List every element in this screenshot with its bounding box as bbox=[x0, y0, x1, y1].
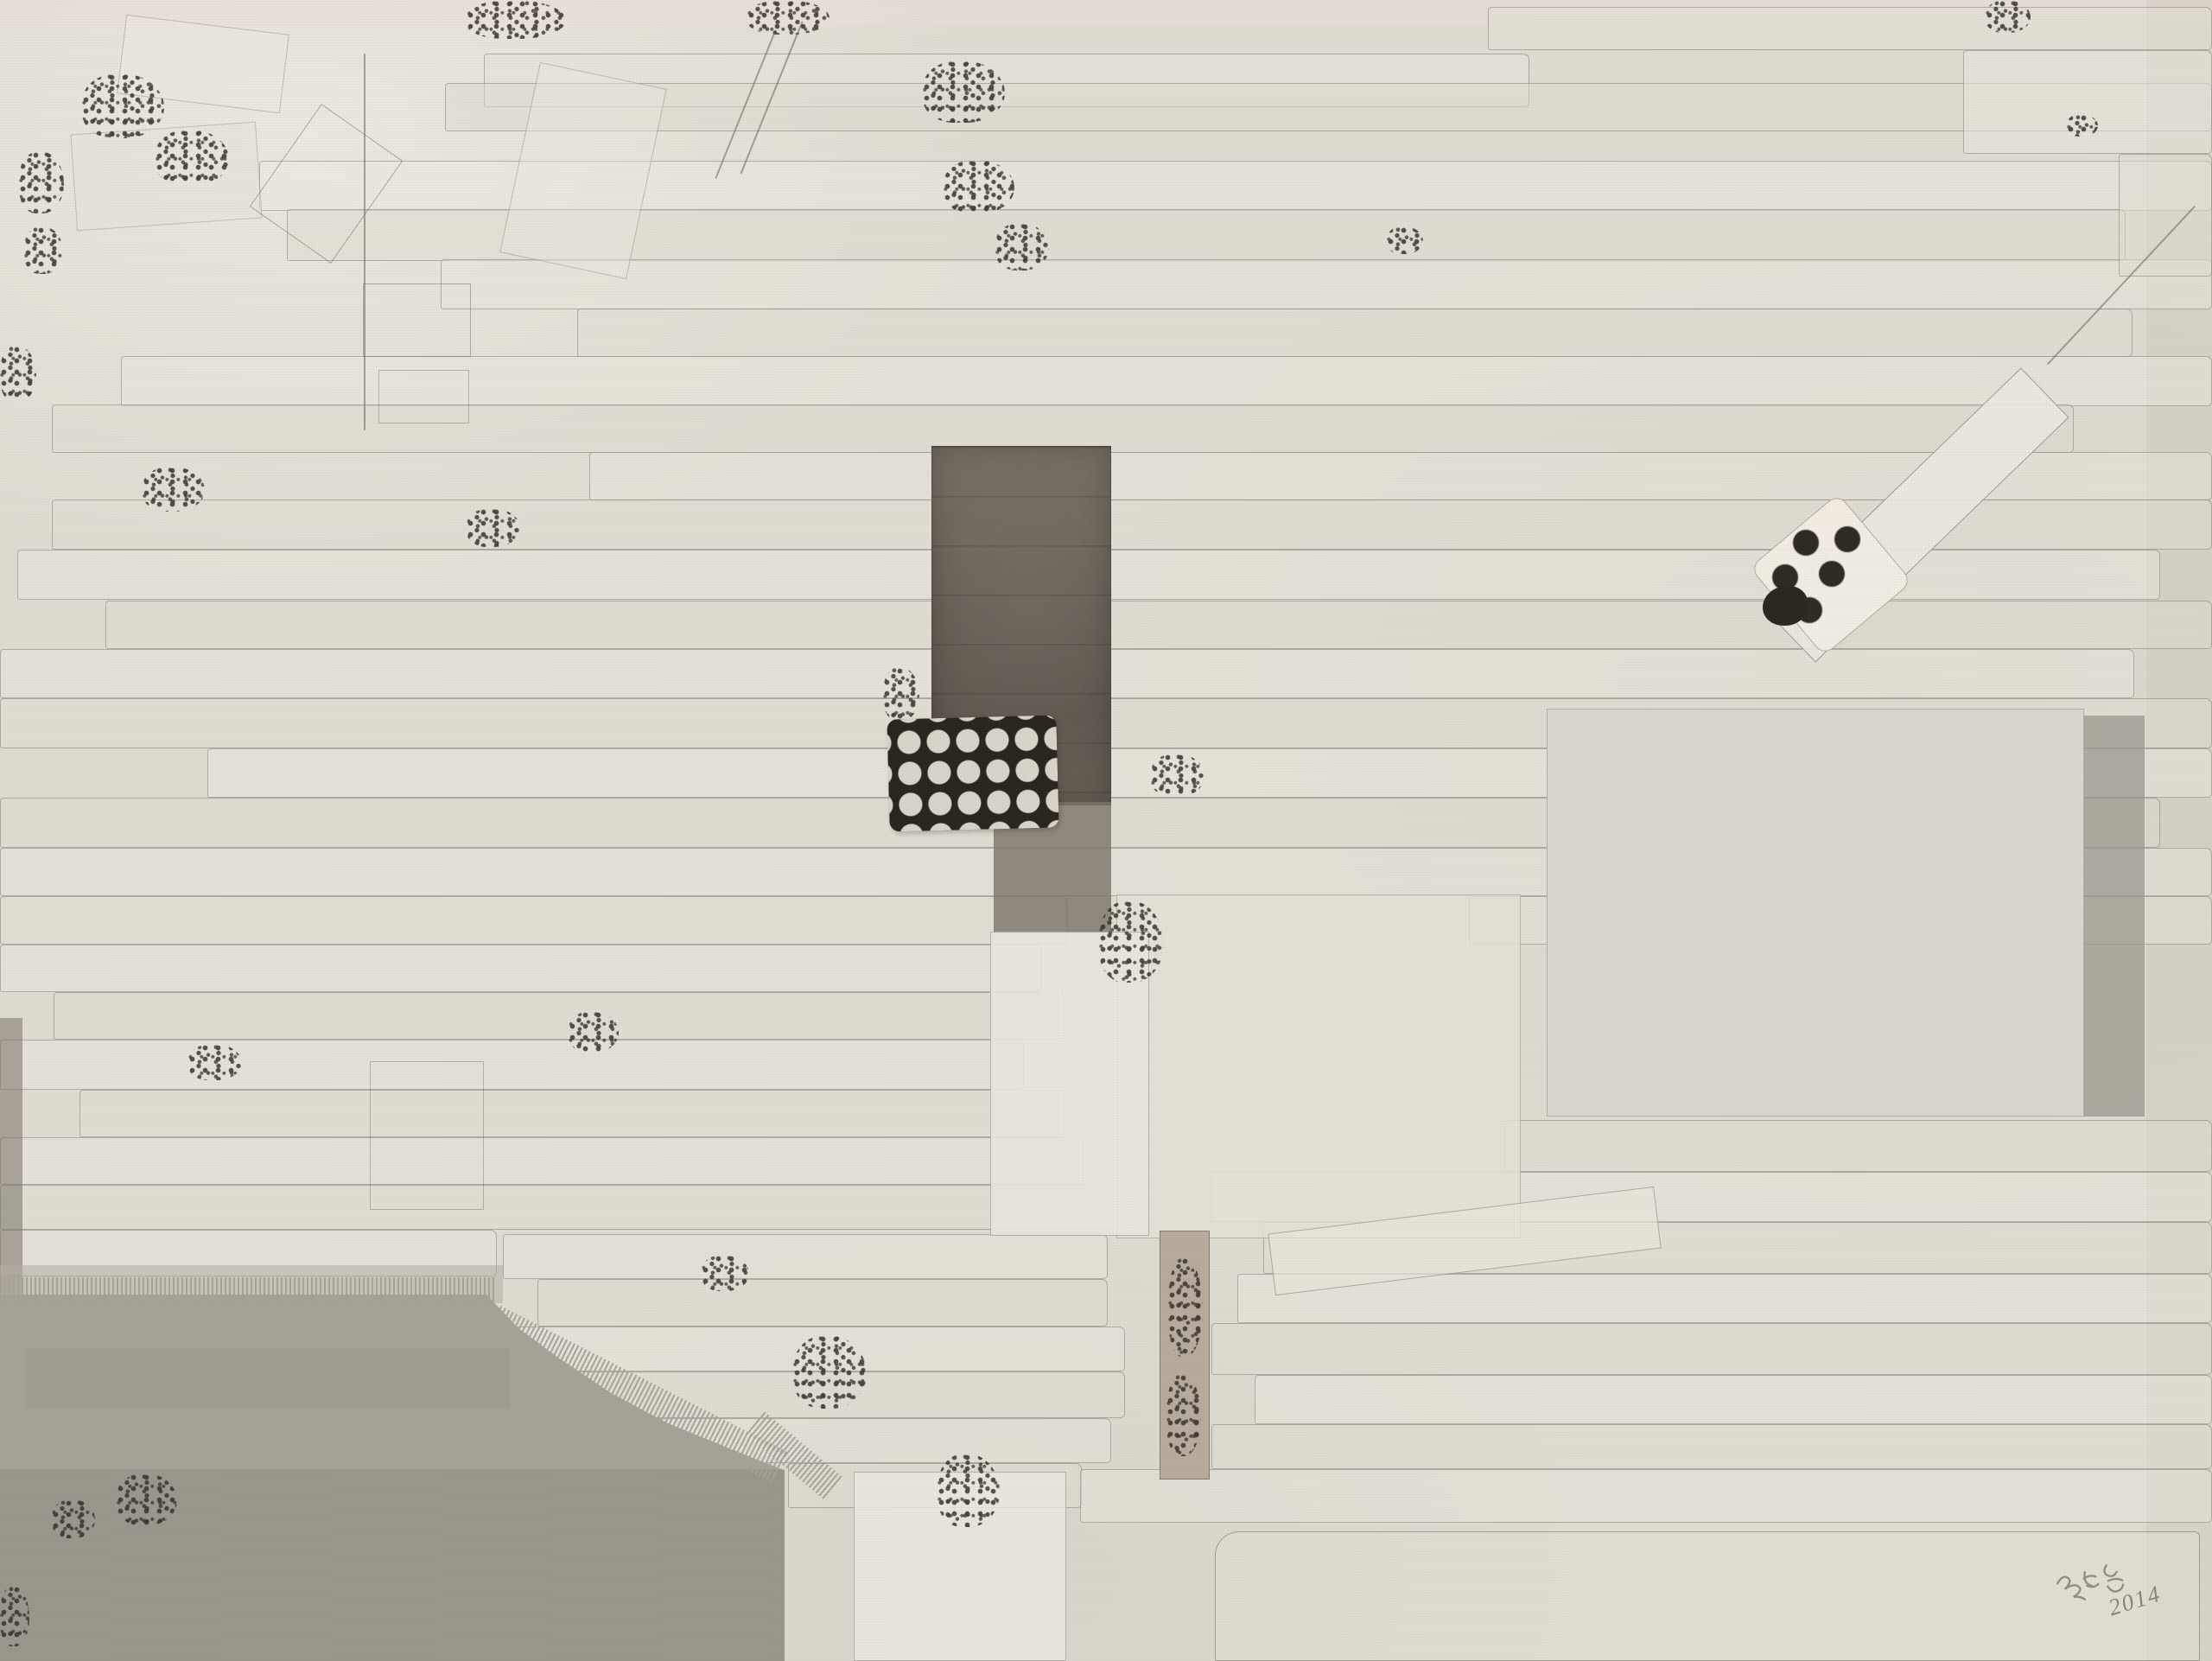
ink-speckle-cluster bbox=[156, 130, 229, 186]
paper-strip bbox=[0, 1040, 1024, 1090]
paper-strip bbox=[0, 1137, 1084, 1185]
ink-speckle-cluster bbox=[117, 1473, 177, 1525]
paper-strip bbox=[1211, 1424, 2212, 1469]
ink-speckle-cluster bbox=[702, 1255, 749, 1291]
wash-mid-shade bbox=[26, 1348, 510, 1409]
paper-strip bbox=[1255, 1375, 2212, 1424]
pencil-step-outline bbox=[378, 370, 469, 423]
ink-speckle-cluster bbox=[188, 1044, 242, 1080]
ink-speckle-cluster bbox=[883, 667, 919, 721]
ink-speckle-cluster bbox=[747, 0, 829, 35]
ink-speckle-cluster bbox=[0, 346, 36, 402]
paper-strip bbox=[0, 896, 1067, 945]
ink-blob bbox=[1763, 586, 1808, 626]
paper-strip bbox=[0, 1185, 1128, 1230]
ink-speckle-cluster bbox=[52, 1499, 95, 1538]
pencil-step-outline bbox=[370, 1061, 484, 1210]
paper-strip bbox=[54, 992, 1065, 1040]
ink-speckle-cluster bbox=[24, 226, 63, 274]
ink-speckle-cluster bbox=[143, 467, 205, 512]
ink-speckle-cluster bbox=[467, 0, 566, 39]
ink-speckle-cluster bbox=[944, 160, 1014, 213]
paper-strip bbox=[1505, 1120, 2212, 1172]
ink-speckle-cluster bbox=[1099, 901, 1164, 983]
ink-speckle-cluster bbox=[1986, 0, 2031, 33]
gray-vertical-band bbox=[2084, 716, 2145, 1117]
ink-speckle-cluster bbox=[1168, 1257, 1203, 1357]
ink-dot bbox=[1834, 526, 1860, 552]
ink-speckle-cluster bbox=[467, 508, 520, 547]
ink-speckle-cluster bbox=[1387, 226, 1423, 254]
artwork-canvas: 2014 bbox=[0, 0, 2212, 1661]
ink-speckle-cluster bbox=[923, 60, 1005, 123]
paper-strip bbox=[441, 259, 2212, 309]
paper-strip bbox=[445, 83, 2212, 131]
ink-dot bbox=[1819, 561, 1845, 587]
ink-speckle-cluster bbox=[1166, 1374, 1201, 1456]
paper-strip bbox=[537, 1279, 1108, 1327]
ink-speckle-cluster bbox=[938, 1454, 1000, 1527]
paper-strip bbox=[1211, 1323, 2212, 1375]
large-plain-sheet bbox=[1547, 709, 2084, 1117]
ink-speckle-cluster bbox=[1151, 754, 1205, 797]
paper-strip bbox=[105, 601, 2212, 649]
paper-strip bbox=[79, 1090, 1065, 1137]
ink-speckle-cluster bbox=[82, 73, 164, 138]
paper-strip bbox=[1080, 1469, 2212, 1523]
pencil-step-outline bbox=[363, 283, 471, 357]
wash-bristle-fringe bbox=[0, 1277, 497, 1308]
outlined-bottom-rectangle bbox=[1215, 1531, 2200, 1661]
paper-strip bbox=[2119, 154, 2212, 277]
pencil-vertical-line bbox=[364, 54, 365, 430]
paper-strip bbox=[577, 309, 2133, 357]
perforated-black-patch bbox=[887, 715, 1058, 831]
pale-sheet bbox=[1116, 894, 1521, 1238]
left-edge-dark-sliver bbox=[0, 1018, 22, 1298]
ink-dot bbox=[1793, 530, 1819, 556]
paper-strip bbox=[1963, 50, 2212, 154]
paper-strip bbox=[0, 945, 1041, 992]
ink-speckle-cluster bbox=[0, 1586, 29, 1646]
ink-speckle-cluster bbox=[995, 223, 1049, 270]
ink-speckle-cluster bbox=[793, 1335, 867, 1409]
ink-speckle-cluster bbox=[569, 1011, 619, 1053]
ink-speckle-cluster bbox=[19, 151, 64, 213]
ink-speckle-cluster bbox=[2067, 114, 2098, 137]
paper-strip bbox=[1488, 7, 2212, 50]
paper-strip bbox=[503, 1234, 1108, 1279]
